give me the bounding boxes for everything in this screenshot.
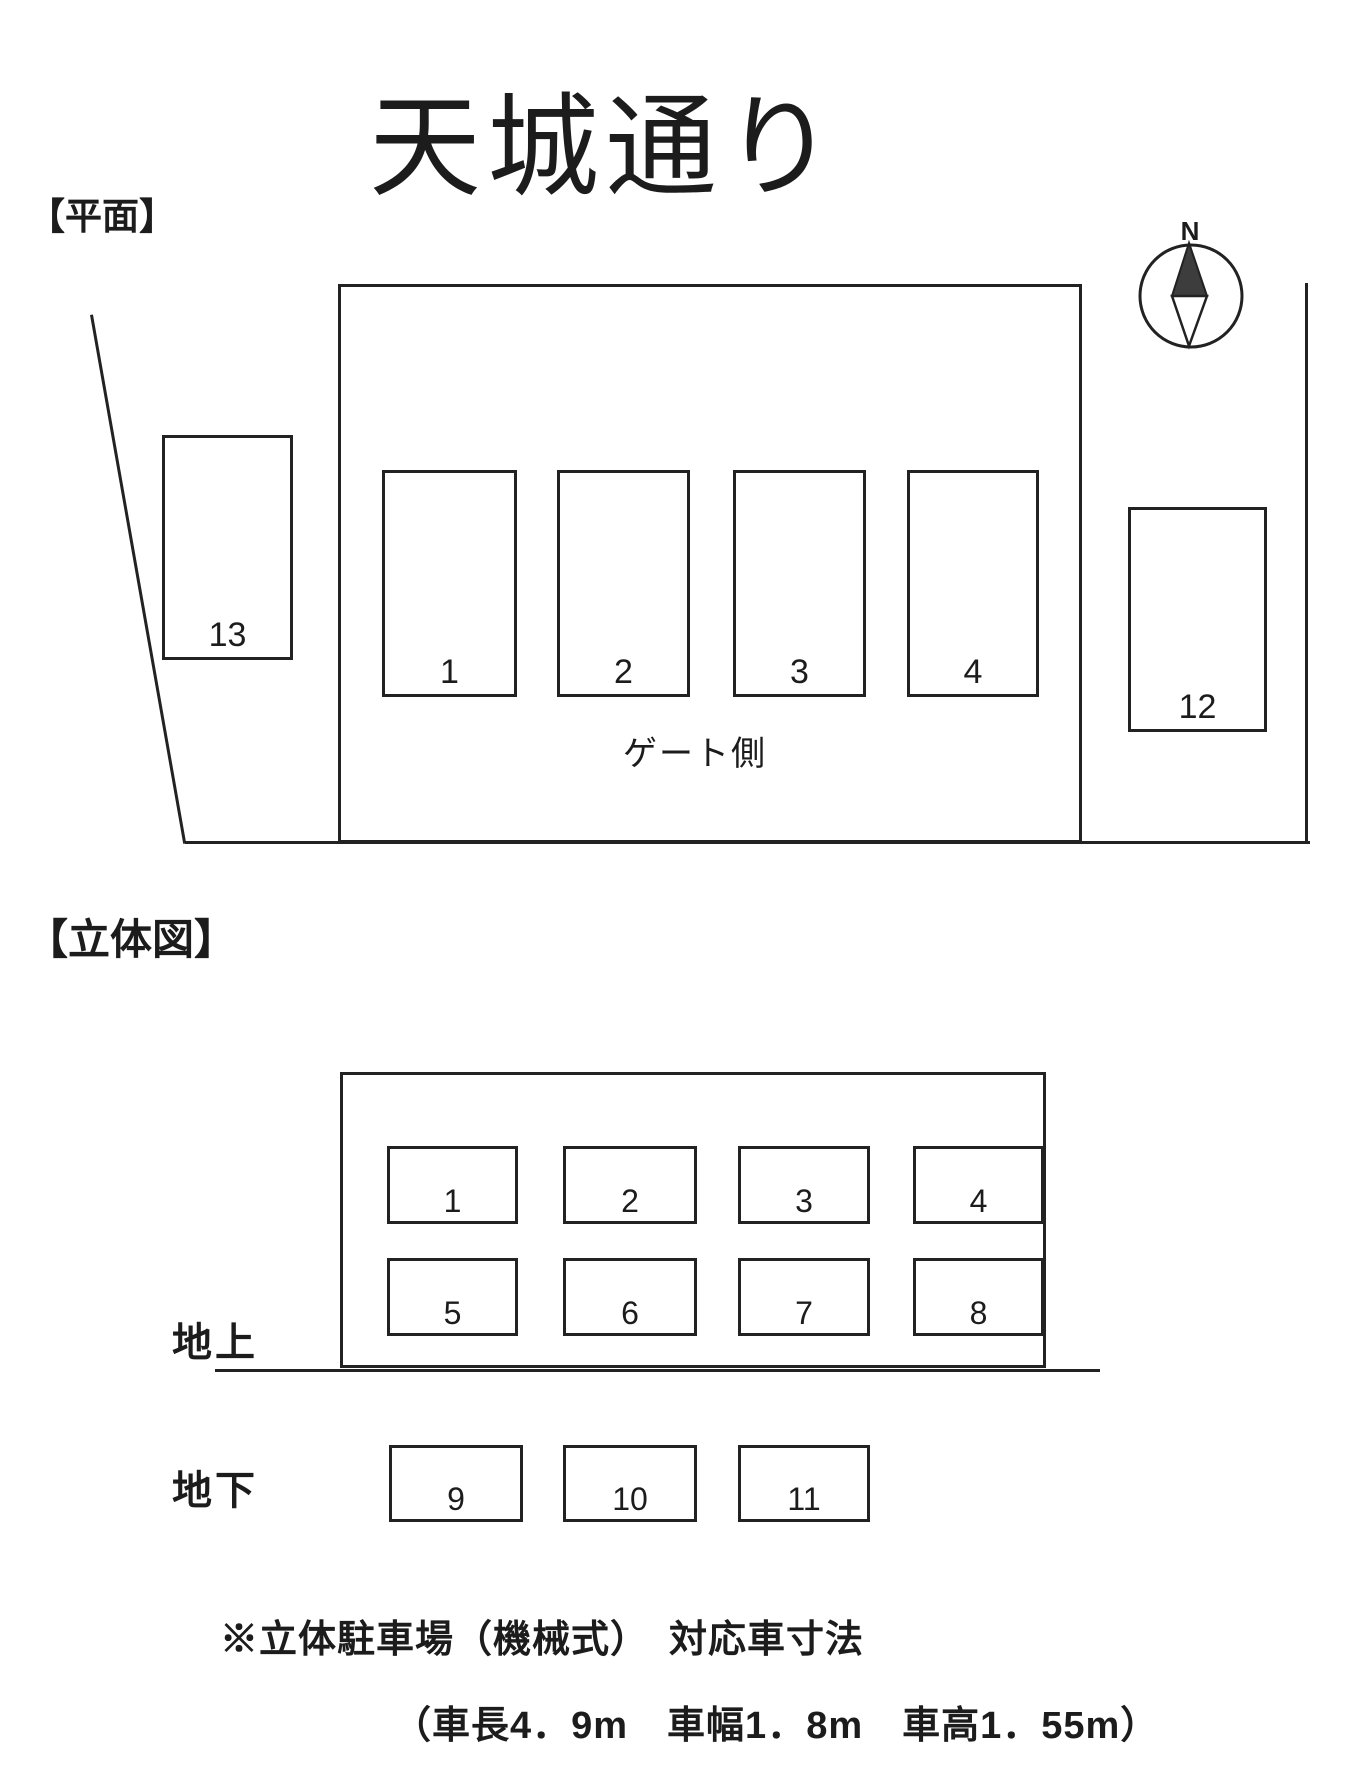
- elevation-section-label: 【立体図】: [26, 906, 236, 967]
- underground-space-11: 11: [738, 1445, 870, 1522]
- ground-line: [215, 1369, 1100, 1372]
- elevation-space-1: 1: [387, 1146, 518, 1224]
- space-2-number: 2: [560, 654, 687, 691]
- underground-space-9: 9: [389, 1445, 523, 1522]
- underground-space-10: 10: [563, 1445, 697, 1522]
- space-12-number: 12: [1131, 689, 1264, 726]
- elevation-space-5-number: 5: [390, 1296, 515, 1331]
- parking-space-4: 4: [907, 470, 1039, 697]
- elevation-space-4: 4: [913, 1146, 1044, 1224]
- elevation-space-8-number: 8: [916, 1296, 1041, 1331]
- parking-space-2: 2: [557, 470, 690, 697]
- parking-space-1: 1: [382, 470, 517, 697]
- note-mechanical-parking: ※立体駐車場（機械式） 対応車寸法: [220, 1608, 864, 1663]
- elevation-space-6-number: 6: [566, 1296, 694, 1331]
- elevation-space-5: 5: [387, 1258, 518, 1336]
- note-car-dimensions: （車長4．9m 車幅1．8m 車高1．55m）: [393, 1694, 1159, 1749]
- elevation-space-2-number: 2: [566, 1184, 694, 1219]
- parking-space-3: 3: [733, 470, 866, 697]
- plan-section-label: 【平面】: [28, 186, 176, 240]
- elevation-space-7: 7: [738, 1258, 870, 1336]
- elevation-space-8: 8: [913, 1258, 1044, 1336]
- elevation-space-6: 6: [563, 1258, 697, 1336]
- underground-space-10-number: 10: [566, 1482, 694, 1517]
- elevation-space-7-number: 7: [741, 1296, 867, 1331]
- space-3-number: 3: [736, 654, 863, 691]
- above-ground-label: 地上: [172, 1310, 258, 1368]
- lot-right-boundary-line: [1305, 283, 1308, 843]
- parking-diagram-page: 天城通り 【平面】 13 1 2 3 4 12 ゲート側 N 【立体図】: [0, 0, 1368, 1773]
- elevation-space-1-number: 1: [390, 1184, 515, 1219]
- space-1-number: 1: [385, 654, 514, 691]
- elevation-space-3: 3: [738, 1146, 870, 1224]
- underground-label: 地下: [172, 1458, 258, 1516]
- underground-space-11-number: 11: [741, 1482, 867, 1517]
- underground-space-9-number: 9: [392, 1482, 520, 1517]
- space-4-number: 4: [910, 654, 1036, 691]
- space-13-number: 13: [165, 617, 290, 654]
- compass-north-label: N: [1181, 216, 1200, 246]
- elevation-space-4-number: 4: [916, 1184, 1041, 1219]
- parking-space-12: 12: [1128, 507, 1267, 732]
- compass-needle-north: [1172, 243, 1207, 296]
- parking-space-13: 13: [162, 435, 293, 660]
- elevation-space-3-number: 3: [741, 1184, 867, 1219]
- page-title: 天城通り: [280, 89, 930, 207]
- compass: N: [1130, 206, 1260, 356]
- elevation-space-2: 2: [563, 1146, 697, 1224]
- compass-needle-south: [1172, 296, 1207, 346]
- gate-side-label: ゲート側: [620, 726, 770, 775]
